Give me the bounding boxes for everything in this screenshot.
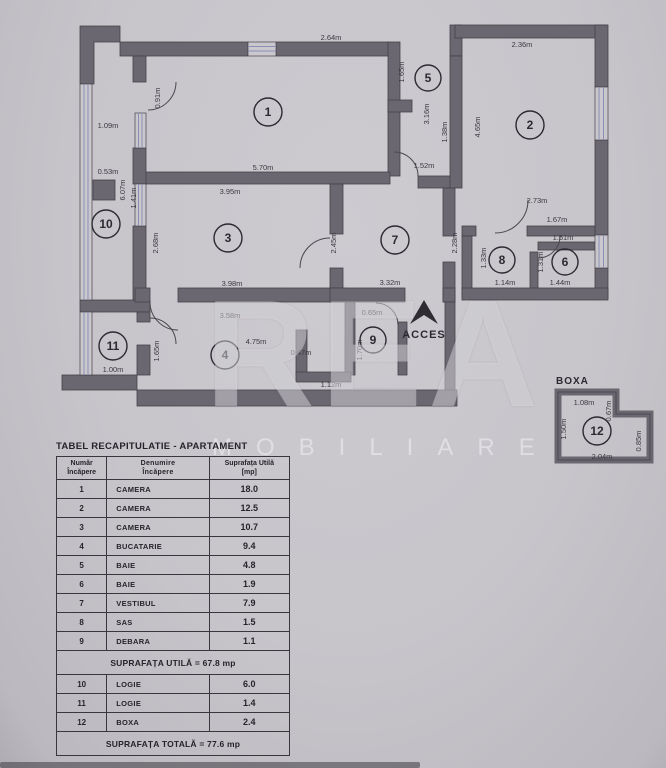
recap-table-title: TABEL RECAPITULATIE - APARTAMENT [56, 441, 294, 452]
dim-label: 1.70m [355, 340, 364, 361]
acces-label: ACCES [402, 329, 446, 341]
cell-room-area: 12.5 [209, 499, 289, 518]
header-line: Încăpere [142, 469, 173, 476]
room-number-7: 7 [392, 233, 399, 247]
dim-label: 3.16m [422, 104, 431, 125]
header-line: Număr [71, 460, 93, 467]
room-number-11: 11 [107, 339, 120, 353]
cell-room-name: LOGIE [107, 675, 209, 694]
room-number-labels: 1 2 3 4 5 6 7 8 9 10 11 12 [99, 71, 604, 438]
room-number-8: 8 [499, 253, 506, 267]
cell-room-area: 2.4 [209, 713, 289, 732]
room-number-9: 9 [370, 333, 377, 347]
dim-label: 1.12m [321, 380, 342, 389]
cell-room-area: 1.4 [209, 694, 289, 713]
cell-room-name: BAIE [107, 575, 209, 594]
cell-room-name: BUCATARIE [107, 537, 209, 556]
dim-label: 0.47m [291, 348, 312, 357]
table-row: 12 BOXA 2.4 [57, 713, 290, 732]
dim-label: 0.65m [362, 308, 383, 317]
boxa-title: BOXA [556, 376, 589, 387]
dim-label: 4.75m [246, 337, 267, 346]
cell-room-number: 7 [57, 594, 107, 613]
cell-room-name: DEBARA [107, 632, 209, 651]
col-header-denumire: Denumire Încăpere [107, 457, 209, 480]
cell-room-name: BAIE [107, 556, 209, 575]
header-line: [mp] [242, 469, 257, 476]
dim-label: 1.00m [103, 365, 124, 374]
cell-room-name: LOGIE [107, 694, 209, 713]
cell-room-number: 11 [57, 694, 107, 713]
dim-label: 0.91m [153, 88, 162, 109]
dim-label: 1.44m [550, 278, 571, 287]
dim-label: 2.64m [321, 33, 342, 42]
header-line: Încăpere [67, 469, 96, 476]
cell-room-name: CAMERA [107, 480, 209, 499]
cell-room-number: 6 [57, 575, 107, 594]
table-row: 2 CAMERA 12.5 [57, 499, 290, 518]
cell-room-number: 10 [57, 675, 107, 694]
table-row: 8 SAS 1.5 [57, 613, 290, 632]
dim-label: 1.38m [440, 122, 449, 143]
recap-table-section: TABEL RECAPITULATIE - APARTAMENT Număr Î… [56, 441, 294, 756]
total-text: SUPRAFAȚA TOTALĂ = 77.6 mp [57, 732, 290, 756]
cell-room-area: 1.5 [209, 613, 289, 632]
cell-room-number: 4 [57, 537, 107, 556]
cell-room-area: 1.9 [209, 575, 289, 594]
cell-room-number: 3 [57, 518, 107, 537]
cell-room-number: 2 [57, 499, 107, 518]
table-row: 6 BAIE 1.9 [57, 575, 290, 594]
dim-label: 1.65m [397, 62, 406, 83]
recap-table: Număr Încăpere Denumire Încăpere Suprafa… [56, 456, 290, 756]
cell-room-area: 9.4 [209, 537, 289, 556]
room-number-3: 3 [225, 231, 232, 245]
cell-room-number: 9 [57, 632, 107, 651]
cell-room-area: 10.7 [209, 518, 289, 537]
table-row: 9 DEBARA 1.1 [57, 632, 290, 651]
subtotal-text: SUPRAFAȚA UTILĂ = 67.8 mp [57, 651, 290, 675]
dim-label: 2.04m [592, 452, 613, 461]
dim-label: 6.07m [118, 180, 127, 201]
cell-room-area: 18.0 [209, 480, 289, 499]
cell-room-area: 7.9 [209, 594, 289, 613]
cell-room-number: 12 [57, 713, 107, 732]
cell-room-name: VESTIBUL [107, 594, 209, 613]
dim-label: 3.98m [222, 279, 243, 288]
table-row: 5 BAIE 4.8 [57, 556, 290, 575]
room-number-10: 10 [99, 217, 113, 231]
table-row: 11 LOGIE 1.4 [57, 694, 290, 713]
dim-label: 0.67m [604, 401, 613, 422]
room-number-6: 6 [562, 255, 569, 269]
room-number-2: 2 [527, 118, 534, 132]
col-header-numar: Număr Încăpere [57, 457, 107, 480]
cell-room-name: BOXA [107, 713, 209, 732]
dim-label: 1.51m [553, 233, 574, 242]
cell-room-name: SAS [107, 613, 209, 632]
acces-arrow-icon [410, 300, 438, 324]
cell-room-name: CAMERA [107, 499, 209, 518]
cell-room-number: 1 [57, 480, 107, 499]
dim-label: 1.65m [152, 341, 161, 362]
photo-edge-shadow [0, 762, 420, 768]
table-row: 10 LOGIE 6.0 [57, 675, 290, 694]
dim-label: 1.14m [495, 278, 516, 287]
table-row: 4 BUCATARIE 9.4 [57, 537, 290, 556]
dim-label: 1.50m [559, 419, 568, 440]
total-row: SUPRAFAȚA TOTALĂ = 77.6 mp [57, 732, 290, 756]
dim-label: 1.08m [574, 398, 595, 407]
scanned-apartment-plan: BOXA ACCES 1 2 3 4 5 6 7 8 9 10 11 12 [0, 0, 666, 768]
dim-label: 1.09m [98, 121, 119, 130]
dim-label: 1.33m [479, 248, 488, 269]
room-number-1: 1 [265, 105, 272, 119]
col-header-suprafata: Suprafața Utilă [mp] [209, 457, 289, 480]
room-number-5: 5 [425, 71, 432, 85]
cell-room-area: 1.1 [209, 632, 289, 651]
dim-label: 2.73m [527, 196, 548, 205]
cell-room-area: 6.0 [209, 675, 289, 694]
dim-label: 1.52m [414, 161, 435, 170]
room-number-12: 12 [590, 424, 604, 438]
header-line: Suprafața Utilă [225, 460, 274, 467]
dim-label: 2.68m [151, 233, 160, 254]
header-line: Denumire [141, 460, 176, 467]
cell-room-number: 5 [57, 556, 107, 575]
dim-label: 1.31m [536, 252, 545, 273]
dim-label: 1.67m [547, 215, 568, 224]
dim-label: 3.32m [380, 278, 401, 287]
room-number-4: 4 [222, 348, 229, 362]
dim-label: 2.28m [450, 233, 459, 254]
dim-label: 1.41m [129, 188, 138, 209]
dim-label: 3.95m [220, 187, 241, 196]
cell-room-number: 8 [57, 613, 107, 632]
cell-room-name: CAMERA [107, 518, 209, 537]
dim-label: 5.70m [253, 163, 274, 172]
cell-room-area: 4.8 [209, 556, 289, 575]
table-row: 7 VESTIBUL 7.9 [57, 594, 290, 613]
dim-label: 2.45m [329, 233, 338, 254]
dim-label: 4.65m [473, 117, 482, 138]
table-row: 3 CAMERA 10.7 [57, 518, 290, 537]
dim-label: 3.58m [220, 311, 241, 320]
dim-label: 2.36m [512, 40, 533, 49]
dim-label: 0.85m [634, 431, 643, 452]
table-row: 1 CAMERA 18.0 [57, 480, 290, 499]
dim-label: 0.53m [98, 167, 119, 176]
subtotal-row: SUPRAFAȚA UTILĂ = 67.8 mp [57, 651, 290, 675]
